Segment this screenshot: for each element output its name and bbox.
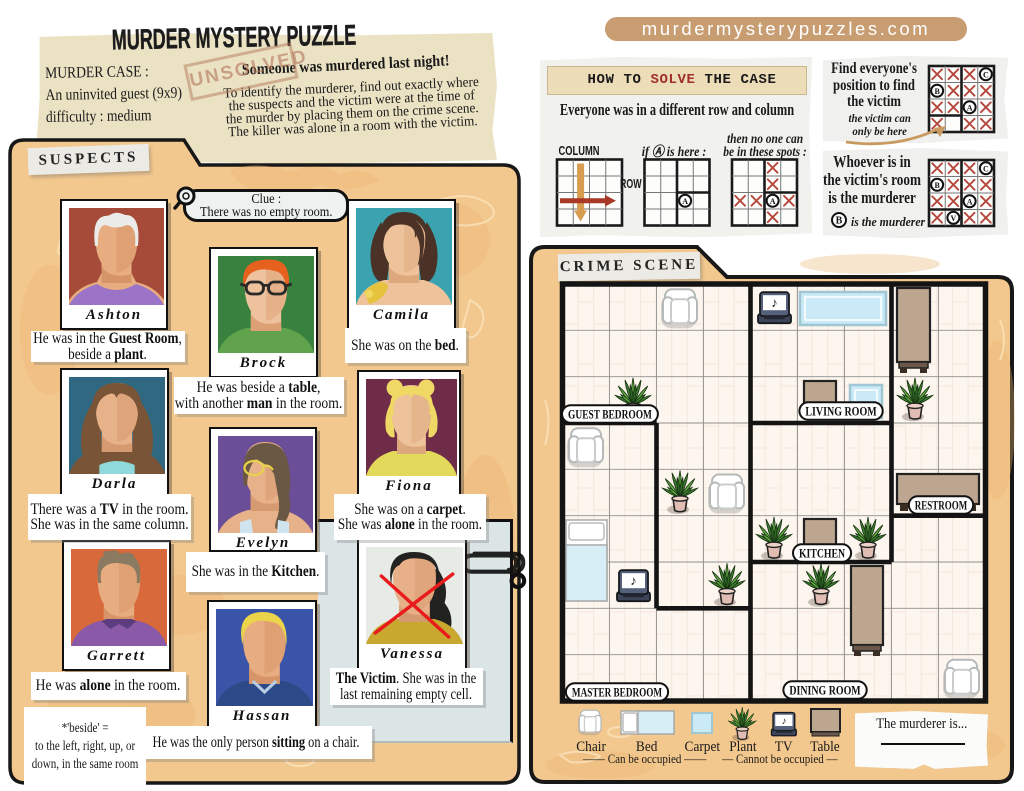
svg-text:RESTROOM: RESTROOM bbox=[915, 497, 967, 512]
svg-text:MASTER BEDROOM: MASTER BEDROOM bbox=[572, 684, 662, 699]
svg-text:GUEST BEDROOM: GUEST BEDROOM bbox=[568, 406, 652, 421]
svg-text:DINING ROOM: DINING ROOM bbox=[789, 682, 860, 697]
svg-text:KITCHEN: KITCHEN bbox=[799, 545, 846, 560]
svg-text:LIVING ROOM: LIVING ROOM bbox=[805, 403, 876, 418]
